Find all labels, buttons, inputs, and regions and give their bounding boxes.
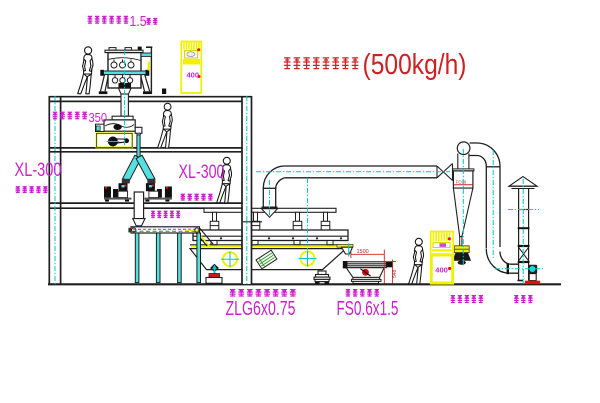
svg-text:FS0.6x1.5: FS0.6x1.5 xyxy=(337,298,399,320)
svg-text:XL-300: XL-300 xyxy=(15,160,62,181)
svg-text:400: 400 xyxy=(435,265,448,274)
svg-text:548: 548 xyxy=(392,269,398,278)
svg-text:1.5: 1.5 xyxy=(130,13,147,30)
svg-text:ZLG6x0.75: ZLG6x0.75 xyxy=(226,298,296,320)
svg-text:XL-300: XL-300 xyxy=(179,162,225,183)
svg-text:400: 400 xyxy=(187,71,200,80)
svg-text:350: 350 xyxy=(89,110,108,125)
svg-text:FC60: FC60 xyxy=(456,180,467,185)
svg-text:(500kg/h): (500kg/h) xyxy=(363,49,467,81)
svg-text:1500: 1500 xyxy=(357,249,369,255)
